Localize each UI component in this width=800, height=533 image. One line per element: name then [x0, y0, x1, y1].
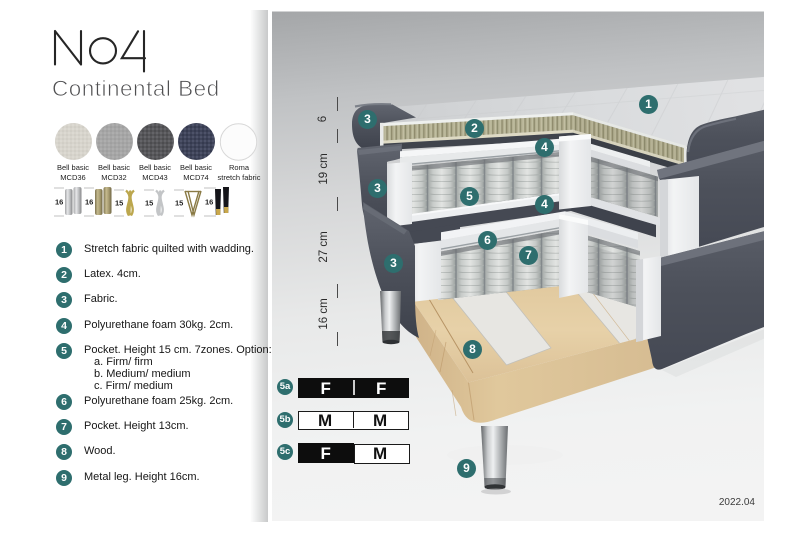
svg-text:15: 15	[175, 199, 183, 208]
svg-text:15: 15	[145, 199, 153, 208]
svg-text:15: 15	[115, 199, 123, 208]
svg-text:16: 16	[205, 198, 213, 207]
svg-text:16: 16	[55, 198, 63, 207]
svg-text:16: 16	[85, 198, 93, 207]
